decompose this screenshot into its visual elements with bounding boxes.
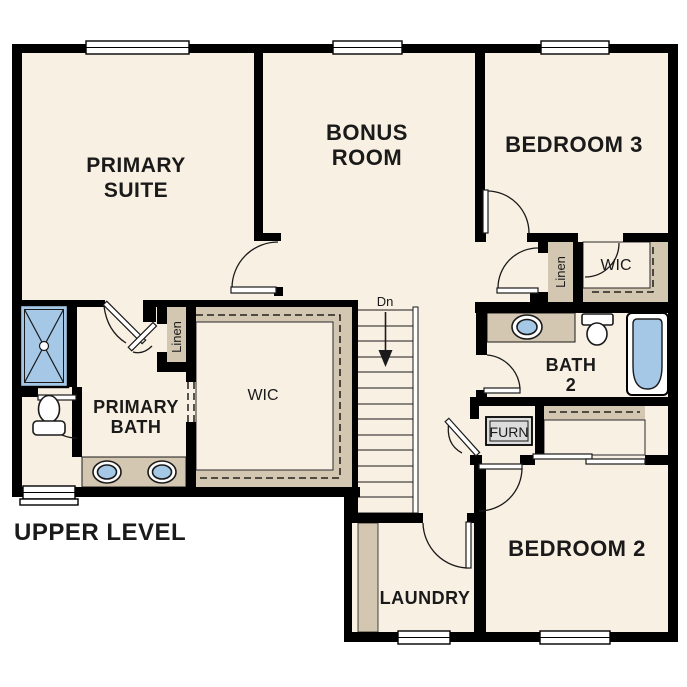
shower-fixture bbox=[20, 305, 68, 387]
room-label-hall-linen: Linen bbox=[553, 256, 568, 288]
room-label-furnace: FURN bbox=[490, 424, 529, 440]
window bbox=[333, 41, 402, 54]
bath2-vanity-sink bbox=[512, 315, 542, 339]
room-label-bedroom3-wic: WIC bbox=[600, 257, 631, 274]
room-label-bedroom3: BEDROOM 3 bbox=[505, 132, 643, 157]
room-label-bedroom2: BEDROOM 2 bbox=[508, 536, 646, 561]
laundry-counter-strip bbox=[358, 523, 378, 632]
room-label-primary-suite-line2: SUITE bbox=[104, 179, 168, 202]
stair-rail bbox=[413, 307, 418, 513]
window bbox=[540, 631, 610, 644]
room-label-bath2-line1: BATH bbox=[546, 355, 597, 375]
room-label-primary-bath-line2: BATH bbox=[111, 417, 162, 437]
room-label-bonus-line2: ROOM bbox=[332, 145, 402, 170]
room-label-laundry: LAUNDRY bbox=[380, 588, 471, 608]
room-label-primary-linen: Linen bbox=[169, 321, 184, 353]
bathtub-fixture bbox=[627, 313, 668, 395]
floor-plan: PRIMARY SUITE BONUS ROOM BEDROOM 3 BEDRO… bbox=[0, 0, 687, 687]
window bbox=[541, 41, 609, 54]
window bbox=[398, 631, 450, 644]
room-label-bath2-line2: 2 bbox=[566, 375, 577, 395]
room-label-primary-suite-line1: PRIMARY bbox=[86, 154, 186, 177]
plan-title: UPPER LEVEL bbox=[14, 519, 186, 546]
room-label-primary-bath-line1: PRIMARY bbox=[93, 397, 179, 417]
window bbox=[86, 41, 189, 54]
room-label-primary-wic: WIC bbox=[247, 387, 278, 404]
stairs-down-label: Dn bbox=[377, 294, 394, 309]
bedroom2-closet-shelf bbox=[544, 406, 645, 455]
window bbox=[20, 486, 78, 505]
room-label-bonus-line1: BONUS bbox=[326, 120, 408, 145]
